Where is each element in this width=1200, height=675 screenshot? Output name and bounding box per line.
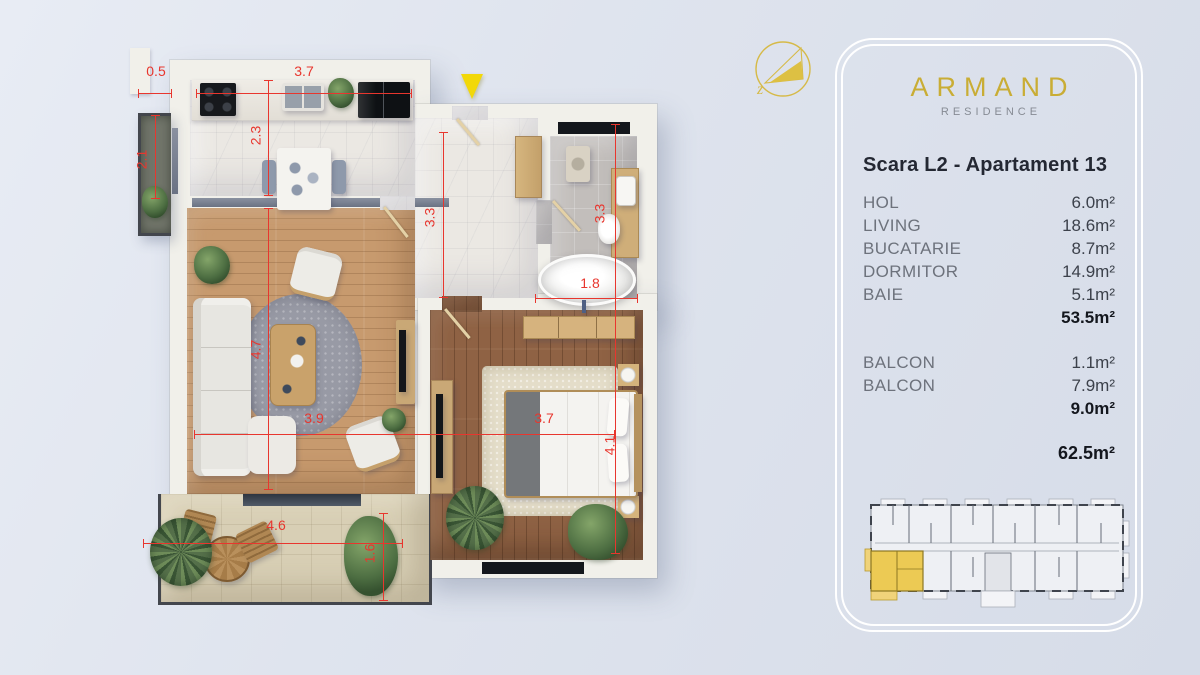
area-row: BAIE 5.1m² [863,283,1115,306]
area-row: BALCON 7.9m² [863,374,1115,397]
dimension-label-bedroom-depth: 4.1 [603,424,618,468]
room-area: 6.0m² [1072,191,1115,214]
entrance-arrow-icon [461,74,483,99]
page: 0.5 3.7 2.3 2.1 3.3 3.3 1.8 4.7 3.9 3.7 … [0,0,1200,675]
balcony-label: BALCON [863,374,935,397]
dim-line [535,298,638,299]
area-row: BUCATARIE 8.7m² [863,237,1115,260]
entrance-bump [981,591,1015,607]
coffee-table [270,324,316,406]
dim-line [615,124,616,554]
bedroom-palm [446,486,504,550]
room-area: 14.9m² [1062,260,1115,283]
dim-line [194,434,615,435]
brand: ARMAND RESIDENCE [863,72,1115,118]
room-label: BAIE [863,283,903,306]
dim-line [155,115,156,199]
room-label: BUCATARIE [863,237,961,260]
area-row: LIVING 18.6m² [863,214,1115,237]
brand-name: ARMAND [863,72,1115,103]
room-area: 5.1m² [1072,283,1115,306]
dim-line [268,208,269,490]
balcony-window [172,128,178,194]
rooms-total-row: 53.5m² [863,306,1115,329]
dimension-label-living-width: 3.9 [292,411,336,426]
grand-total-row: 62.5m² [863,442,1115,465]
living-sliding-door [243,494,361,506]
area-row: HOL 6.0m² [863,191,1115,214]
dimension-label-kitchen-depth: 2.3 [249,114,264,158]
balcony-area: 1.1m² [1072,351,1115,374]
bedroom-dresser [523,316,635,339]
balconies-total-row: 9.0m² [863,397,1115,420]
dimension-label-terrace-width: 4.6 [254,518,298,533]
washing-machine [566,146,590,182]
dimension-label-bath-depth: 3.3 [593,192,608,236]
info-panel: ARMAND RESIDENCE Scara L2 - Apartament 1… [835,38,1143,632]
room-area: 18.6m² [1062,214,1115,237]
rooms-total: 53.5m² [1061,306,1115,329]
living-plant [194,246,230,284]
dimension-label-kitchen-width: 3.7 [282,64,326,79]
dim-line [196,93,412,94]
room-area: 8.7m² [1072,237,1115,260]
kitchen-sink [282,83,324,111]
terrace-palm [150,518,212,586]
dimension-label-bath-width: 1.8 [568,276,612,291]
building-overview-plan [863,491,1131,619]
brand-subtitle: RESIDENCE [863,106,1115,118]
bedroom-tv [436,394,443,478]
dimension-label-bedroom-width: 3.7 [522,411,566,426]
dining-chair [262,160,276,194]
bedroom-plant [568,504,628,560]
bedroom-window [482,562,584,574]
hall-wardrobe [515,136,542,198]
stair-core [985,553,1011,591]
building-overview [863,491,1115,624]
sofa [193,298,251,476]
bath-door-threshold [536,200,552,244]
dim-line [268,80,269,196]
dining-table [277,148,331,210]
dimension-label-terrace-depth: 1.6 [363,532,378,576]
dim-line [383,513,384,601]
room-label: LIVING [863,214,921,237]
console-plant [382,408,406,432]
room-label: HOL [863,191,899,214]
tub-faucet [582,300,586,313]
dimension-label-living-depth: 4.7 [249,328,264,372]
highlighted-unit [865,549,923,600]
balcony-label: BALCON [863,351,935,374]
balcony-area: 7.9m² [1072,374,1115,397]
grand-total: 62.5m² [1058,442,1115,465]
compass-icon: z [750,38,816,104]
dim-line [443,132,444,298]
dimension-label-kitchen-offset: 0.5 [134,64,178,79]
sofa-chaise [248,416,296,474]
vanity-sink [616,176,636,206]
compass: z [750,38,816,104]
balconies-total: 9.0m² [1071,397,1115,420]
spacer [863,329,1115,351]
dimension-label-balcony-left-height: 2.1 [135,138,150,182]
headboard [634,394,642,492]
area-row: BALCON 1.1m² [863,351,1115,374]
area-table: HOL 6.0m² LIVING 18.6m² BUCATARIE 8.7m² … [863,191,1115,465]
area-row: DORMITOR 14.9m² [863,260,1115,283]
fridge [358,82,410,118]
apartment-title: Scara L2 - Apartament 13 [863,154,1115,177]
tv [399,330,406,392]
room-label: DORMITOR [863,260,958,283]
cooktop [200,83,236,116]
nightstand [618,364,639,386]
floor-plan: 0.5 3.7 2.3 2.1 3.3 3.3 1.8 4.7 3.9 3.7 … [130,48,670,630]
dimension-label-hall-depth: 3.3 [423,196,438,240]
dim-line [138,93,172,94]
dining-chair [332,160,346,194]
svg-text:z: z [756,81,764,98]
